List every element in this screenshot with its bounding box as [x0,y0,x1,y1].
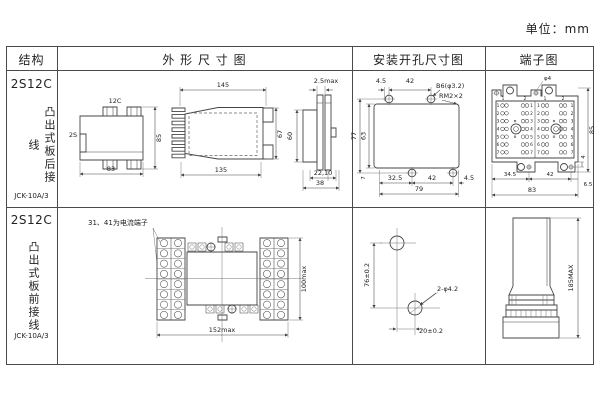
header-terminal: 端子图 [485,51,593,67]
mounting-holes [383,93,459,179]
dim-label: 2S [69,131,77,139]
outline-drawing-front-wiring: 31、41为电流端子 [60,207,352,365]
datasheet-page: 单位：mm 结构 外 形 尺 寸 图 安装开孔尺寸图 端子图 2S12C 凸出式… [0,0,600,400]
unit-label: 单位：mm [505,20,590,37]
svg-text:4: 4 [571,127,574,133]
terminal-grid [501,104,567,154]
svg-text:3: 3 [537,119,540,125]
svg-text:5: 5 [530,134,533,140]
dim-label: 83 [107,165,115,173]
dim-label: 77 [350,132,358,140]
terminal-col-number: 2 [524,96,527,102]
dim-label: 60 [286,132,294,140]
dim-label: 42 [406,77,414,85]
svg-text:2: 2 [530,111,533,117]
dim-label: 83 [528,186,536,194]
table-border-left [6,46,7,365]
dim-label: 4.5 [376,77,386,85]
svg-text:1: 1 [537,103,540,109]
hole-spec-label: B6(φ3.2) [436,82,464,90]
dim-label: 20±0.2 [419,327,443,335]
header-structure: 结构 [6,51,57,67]
mounting-hole-drawing-2: 2-φ4.2 76±0.2 20±0.2 [352,207,485,365]
terminal-col-number: 1 [502,96,505,102]
dim-label: 135 [215,166,227,174]
hole-spec-label: φ4 [544,76,552,82]
table-border-top [6,46,594,47]
side-view: 145 135 67 [172,81,284,178]
dim-label: 4 [581,155,587,159]
svg-text:1: 1 [571,103,574,109]
hole-spec-label: 2-φ4.2 [437,285,458,293]
dim-label: 38 [316,179,324,187]
svg-text:6: 6 [571,142,574,148]
dim-label: 67 [276,130,284,138]
dim-label: 22,10 [314,169,333,177]
svg-text:6: 6 [537,142,540,148]
row1-code: JCK-10A/3 [7,191,55,200]
dim-label: 12C [109,97,122,105]
row2-model: 2S12C [6,213,57,227]
current-terminal-note: 31、41为电流端子 [88,218,148,227]
svg-text:7: 7 [571,150,574,156]
svg-text:1: 1 [497,103,500,109]
svg-text:5: 5 [537,134,540,140]
dim-label: 85 [588,126,596,134]
terminal-side-view-2: 185MAX [485,207,600,365]
left-terminal-block [157,238,185,320]
front-view: 12C 2S 85 83 [69,97,163,177]
svg-text:7: 7 [537,150,540,156]
svg-text:6: 6 [530,142,533,148]
svg-text:3: 3 [530,119,533,125]
header-outline: 外 形 尺 寸 图 [57,51,352,67]
panel-cutout [374,104,459,168]
dim-label: 63 [360,132,368,140]
dim-label: 34.5 [504,172,517,178]
svg-text:2: 2 [571,111,574,117]
dim-label: 2.5max [314,77,339,85]
row2-code: JCK-10A/3 [7,331,55,340]
outline-drawing-rear-wiring: 12C 2S 85 83 145 135 67 [60,70,352,207]
mounting-holes [380,228,440,335]
svg-text:1: 1 [530,103,533,109]
svg-text:7: 7 [497,150,500,156]
dim-label: 42 [428,174,436,182]
terminal-col-number: 1 [544,96,547,102]
header-mounting: 安装开孔尺寸图 [352,51,485,67]
dim-label: 185MAX [567,264,575,291]
svg-text:2: 2 [497,111,500,117]
svg-text:7: 7 [530,150,533,156]
dim-label: 4.5 [464,174,474,182]
row1-model: 2S12C [6,77,57,91]
dim-label: 85 [155,134,163,142]
mounting-hole-drawing-1: 4.5 42 B6(φ3.2) RM2×2 77 63 7 32.5 42 4.… [352,70,485,207]
svg-text:6: 6 [497,142,500,148]
dim-label: 7 [361,176,367,180]
svg-text:4: 4 [530,127,533,133]
row2-mount-type: 凸出式板前接线 [25,236,41,336]
svg-text:4: 4 [537,127,540,133]
dim-label: 100max [300,266,308,293]
dim-label: 79 [415,185,423,193]
row1-mount-type: 凸出式板后接线 [25,100,57,190]
dim-label: 152max [209,326,236,334]
dim-label: 32.5 [388,174,402,182]
dim-label: 76±0.2 [363,263,371,287]
dim-label: 145 [217,81,229,89]
relay-side-profile [503,218,559,338]
svg-text:3: 3 [497,119,500,125]
rear-view: 2.5max 60 22,10 38 [286,77,339,191]
svg-text:3: 3 [571,119,574,125]
col-divider-1 [57,46,58,365]
svg-text:4: 4 [497,127,500,133]
dim-label: 6.5 [584,182,593,188]
svg-text:2: 2 [537,111,540,117]
dim-label: 42 [547,172,554,178]
corner-radius-label: RM2×2 [439,92,463,100]
terminal-col-number: 2 [562,96,565,102]
svg-text:5: 5 [571,134,574,140]
terminal-diagram-1: φ4 1 2 1 2 1 2 3 4 5 6 [485,70,600,207]
svg-text:5: 5 [497,134,500,140]
relay-body [145,227,303,342]
right-terminal-block [260,238,288,320]
